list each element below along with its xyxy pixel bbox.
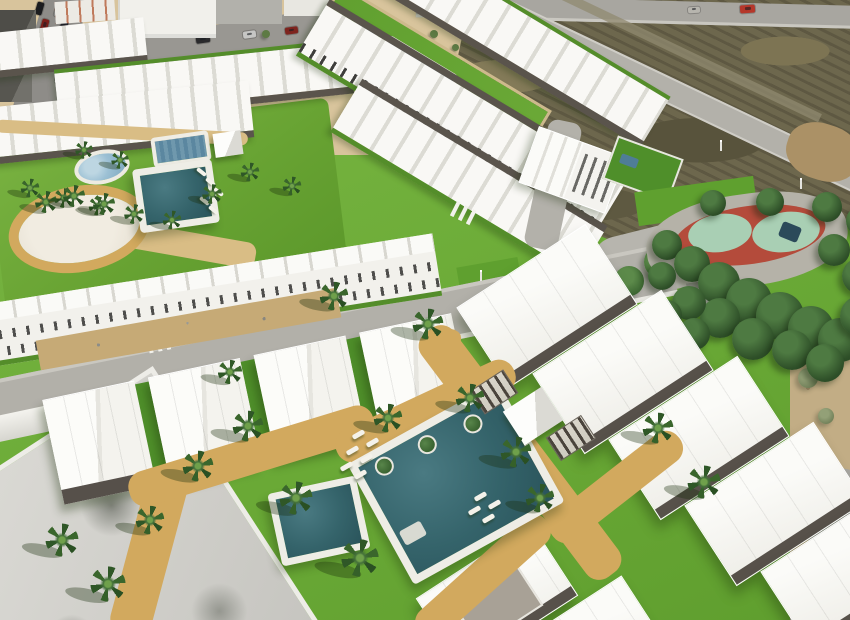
pool-planter — [371, 453, 397, 479]
aerial-development-render — [0, 0, 850, 620]
pine-tree — [818, 234, 850, 266]
pine-tree — [732, 318, 774, 360]
pine-tree — [812, 192, 842, 222]
bush — [452, 44, 459, 51]
pool-shed — [212, 130, 243, 158]
street-lamp — [480, 272, 482, 281]
bush — [430, 30, 438, 38]
pine-tree — [842, 258, 850, 294]
gray-building — [216, 0, 282, 24]
street-lamp — [720, 142, 722, 151]
pool-planter — [460, 411, 486, 437]
pine-tree — [700, 190, 726, 216]
pine-tree — [648, 262, 676, 290]
pine-tree — [806, 344, 844, 382]
pool-steps — [399, 520, 428, 546]
parked-car — [688, 7, 700, 14]
red-car — [740, 4, 756, 13]
bare-tree — [818, 408, 834, 424]
pool-planter — [414, 432, 440, 458]
pine-tree — [756, 188, 784, 216]
bush — [262, 30, 270, 38]
street-lamp — [800, 180, 802, 189]
